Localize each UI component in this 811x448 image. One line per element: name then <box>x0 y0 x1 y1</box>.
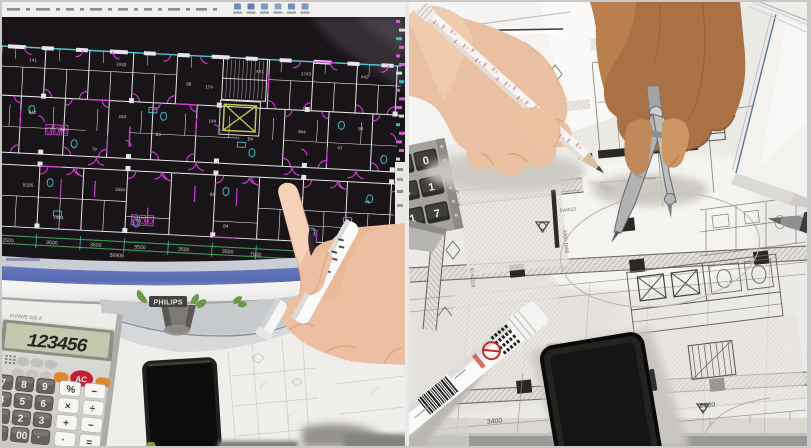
svg-text:184#: 184# <box>115 187 126 193</box>
svg-text:184: 184 <box>118 114 126 119</box>
svg-text:84: 84 <box>156 132 162 137</box>
svg-text:1984: 1984 <box>53 215 64 221</box>
svg-text:1#4: 1#4 <box>208 119 216 124</box>
svg-text:8185: 8185 <box>23 182 34 188</box>
svg-text:56908: 56908 <box>109 253 124 260</box>
svg-text:3500: 3500 <box>2 238 14 245</box>
svg-text:88: 88 <box>186 81 192 86</box>
svg-text:00: 00 <box>16 430 29 442</box>
svg-text:842: 842 <box>29 109 37 114</box>
svg-text:3400: 3400 <box>487 418 503 426</box>
svg-text:3500: 3500 <box>134 244 146 251</box>
svg-text:141: 141 <box>29 57 37 62</box>
svg-text:3500: 3500 <box>222 249 234 256</box>
svg-text:3500: 3500 <box>90 242 102 249</box>
svg-text:9#4: 9#4 <box>298 129 306 134</box>
svg-text:84: 84 <box>223 223 229 228</box>
svg-text:1743: 1743 <box>301 71 312 77</box>
svg-text:8#: 8# <box>210 192 216 197</box>
svg-text:3500: 3500 <box>46 240 58 247</box>
svg-text:41: 41 <box>337 145 343 150</box>
svg-text:%: % <box>66 384 76 396</box>
svg-text:#42: #42 <box>361 74 369 79</box>
svg-text:#4: #4 <box>364 200 370 205</box>
svg-text:B#: B# <box>247 137 253 142</box>
svg-text:3500: 3500 <box>178 247 190 254</box>
svg-text:174: 174 <box>205 84 213 89</box>
svg-text:PHILIPS: PHILIPS <box>154 300 183 307</box>
svg-text:4#1: 4#1 <box>256 69 264 74</box>
svg-text:7000: 7000 <box>250 252 262 259</box>
svg-text:1#43: 1#43 <box>116 62 127 68</box>
svg-text:93: 93 <box>60 127 66 132</box>
svg-text:7#: 7# <box>92 147 98 152</box>
